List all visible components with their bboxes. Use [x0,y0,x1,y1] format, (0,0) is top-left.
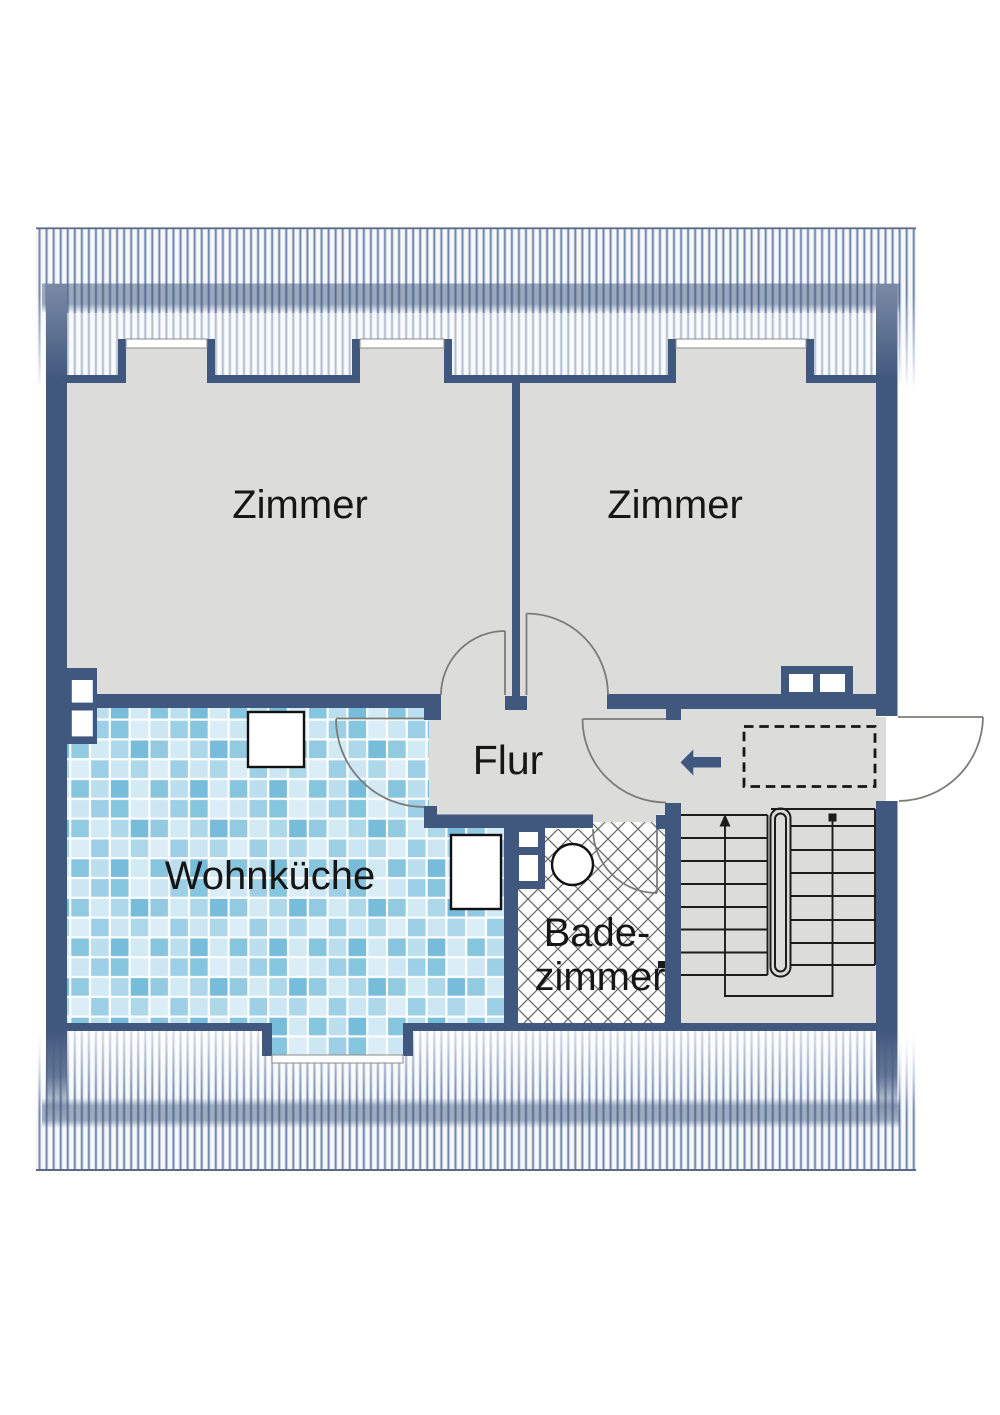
svg-text:Wohnküche: Wohnküche [165,854,376,898]
svg-text:Zimmer: Zimmer [232,483,368,527]
svg-text:zimmer: zimmer [534,955,665,999]
svg-text:Zimmer: Zimmer [607,483,743,527]
svg-text:Bade-: Bade- [544,911,651,955]
svg-text:Flur: Flur [473,737,544,783]
